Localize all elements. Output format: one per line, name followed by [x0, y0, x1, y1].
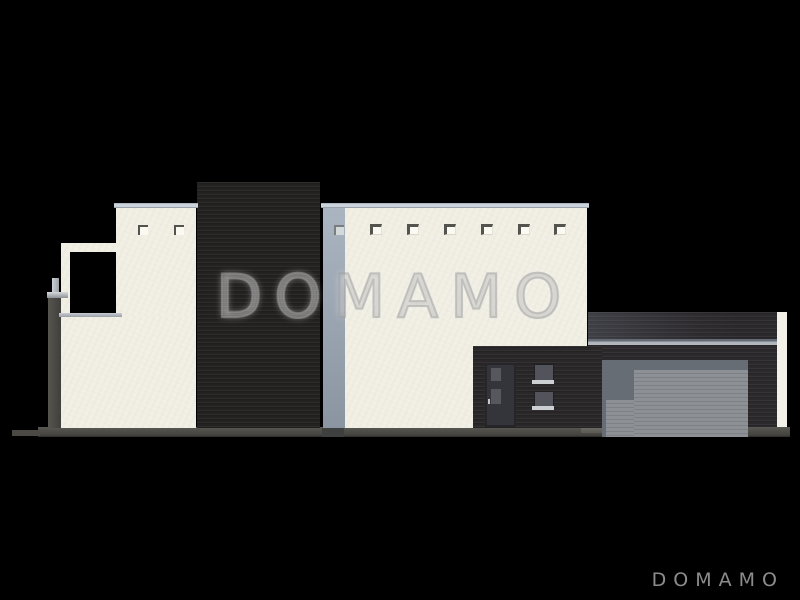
ground-tip-left: [12, 430, 40, 436]
entry-door: [485, 363, 516, 427]
clerestory-vent: [138, 225, 148, 235]
garage-block-sheen: [588, 312, 777, 339]
clerestory-vent-shaded: [334, 225, 344, 235]
main-wall-coping: [321, 203, 589, 208]
garage-door-panel: [634, 370, 748, 437]
clerestory-vent: [481, 224, 493, 235]
clerestory-vent: [370, 224, 382, 235]
clerestory-vent: [174, 225, 184, 235]
vent-pipe-flange: [47, 292, 68, 298]
wing-window-upper-sill: [532, 380, 554, 384]
door-handle: [488, 399, 490, 404]
door-glass-lower: [491, 389, 501, 404]
door-glass-upper: [491, 368, 501, 381]
wing-window-lower-sill: [532, 406, 554, 410]
clerestory-vent: [407, 224, 419, 235]
garage-door-panel-lower: [606, 400, 634, 437]
garage-end-wall: [777, 312, 787, 429]
garage-door: [602, 360, 748, 437]
brand-logo-text: DOMAMO: [652, 569, 784, 591]
wing-window-upper: [534, 364, 554, 381]
left-wall-lower: [61, 316, 196, 428]
clerestory-vent: [518, 224, 530, 235]
clerestory-vent: [444, 224, 456, 235]
left-wall-coping: [114, 203, 198, 208]
entry-wing: [473, 346, 602, 428]
pergola-sill: [59, 313, 122, 317]
ground-shadow-segment: [322, 428, 344, 437]
clerestory-vent: [554, 224, 566, 235]
garage-fascia-stripe: [588, 339, 777, 345]
watermark-text: DOMAMO: [216, 262, 573, 332]
elevation-render: DOMAMO DOMAMO: [0, 0, 800, 600]
pergola-frame-leg: [61, 243, 70, 316]
